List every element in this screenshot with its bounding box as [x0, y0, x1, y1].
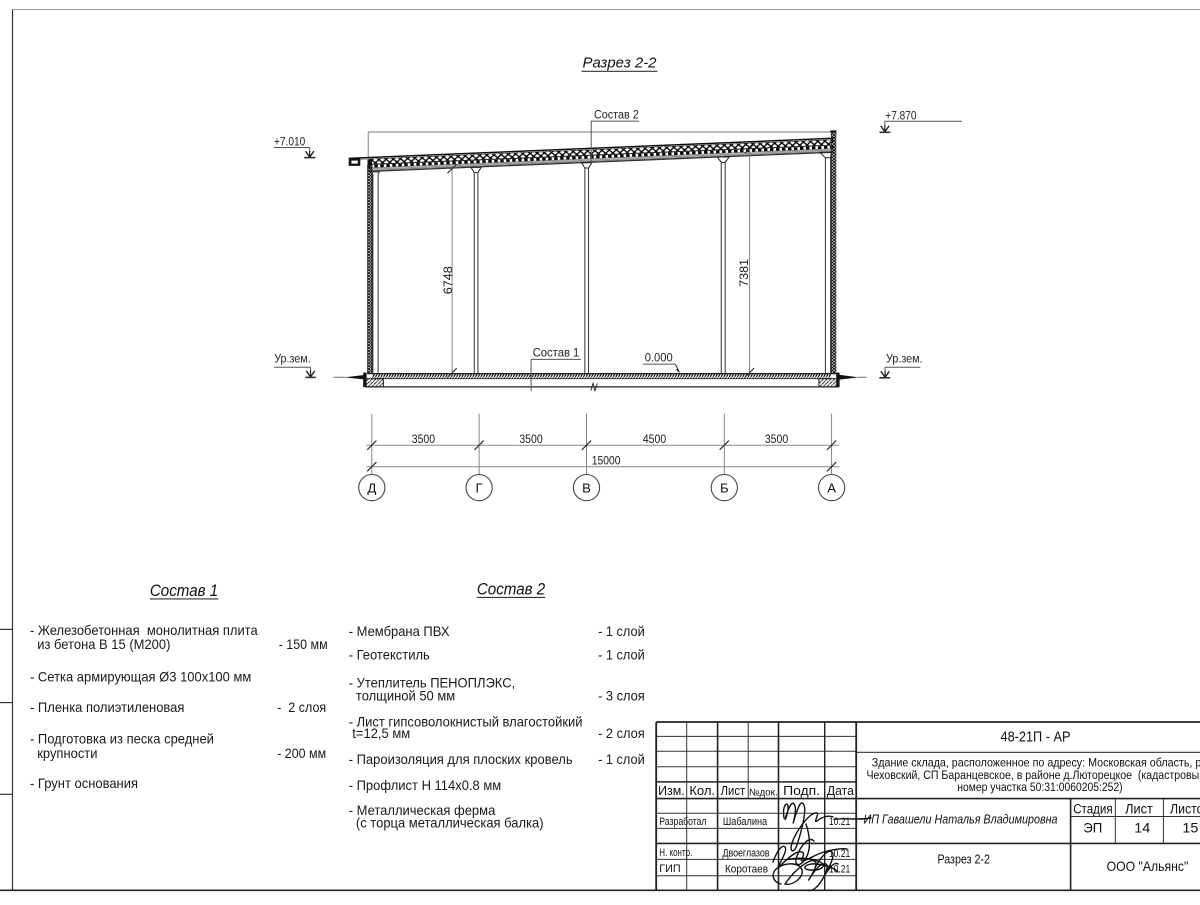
svg-text:Двоеглазов: Двоеглазов	[723, 848, 770, 860]
svg-text:15: 15	[1182, 820, 1198, 836]
svg-text:0.000: 0.000	[645, 351, 673, 365]
svg-text:- 3 слоя: - 3 слоя	[598, 688, 645, 703]
svg-text:Лист: Лист	[721, 783, 746, 798]
svg-text:Д: Д	[367, 480, 376, 495]
svg-text:крупности: крупности	[30, 746, 98, 761]
svg-text:- 200 мм: - 200 мм	[277, 746, 326, 761]
svg-text:t=12,5 мм: t=12,5 мм	[349, 726, 411, 741]
svg-text:из бетона В 15 (М200): из бетона В 15 (М200)	[30, 637, 170, 652]
svg-text:+7.870: +7.870	[885, 108, 917, 122]
svg-text:- 150 мм: - 150 мм	[279, 637, 328, 652]
svg-text:- Пленка полиэтиленовая: - Пленка полиэтиленовая	[30, 700, 184, 715]
svg-text:Состав 1: Состав 1	[533, 346, 580, 360]
svg-text:- Пароизоляция для плоских кро: - Пароизоляция для плоских кровель	[349, 752, 573, 767]
svg-text:4500: 4500	[643, 432, 666, 446]
svg-text:- Грунт основания: - Грунт основания	[30, 776, 138, 791]
svg-text:ООО "Альянс": ООО "Альянс"	[1107, 859, 1189, 874]
svg-text:ИП Гавашели Наталья Владимиров: ИП Гавашели Наталья Владимировна	[864, 813, 1058, 827]
svg-text:Г: Г	[476, 480, 483, 495]
svg-text:- Геотекстиль: - Геотекстиль	[349, 648, 430, 663]
svg-text:- 1 слой: - 1 слой	[598, 624, 645, 639]
svg-text:Кол.: Кол.	[689, 783, 715, 798]
svg-text:- 1 слой: - 1 слой	[598, 752, 645, 767]
svg-text:№док.: №док.	[749, 787, 778, 798]
svg-text:48-21П - АР: 48-21П - АР	[1001, 729, 1071, 745]
svg-text:номер участка 50:31:0060205:25: номер участка 50:31:0060205:252)	[957, 780, 1122, 794]
svg-text:Состав 2: Состав 2	[477, 579, 546, 598]
svg-text:6748: 6748	[441, 266, 455, 294]
svg-text:10.21: 10.21	[829, 816, 851, 828]
svg-text:ГИП: ГИП	[659, 863, 680, 875]
svg-text:Ур.зем.: Ур.зем.	[886, 351, 923, 365]
svg-text:Разрез 2-2: Разрез 2-2	[583, 56, 657, 72]
svg-text:Стадия: Стадия	[1073, 801, 1112, 816]
svg-text:3500: 3500	[519, 432, 542, 446]
svg-text:14: 14	[1134, 820, 1150, 836]
svg-text:(с торца металлическая балка): (с торца металлическая балка)	[349, 816, 544, 831]
svg-text:Б: Б	[720, 480, 729, 495]
svg-text:В: В	[582, 480, 591, 495]
svg-text:Состав 1: Состав 1	[150, 581, 218, 600]
svg-text:Подп.: Подп.	[783, 783, 820, 798]
svg-text:Листов: Листов	[1170, 801, 1200, 816]
svg-text:толщиной 50 мм: толщиной 50 мм	[349, 688, 456, 703]
svg-text:3500: 3500	[412, 432, 435, 446]
svg-text:Состав 2: Состав 2	[594, 108, 639, 122]
svg-text:- 2 слоя: - 2 слоя	[598, 726, 645, 741]
svg-text:+7.010: +7.010	[274, 134, 306, 148]
svg-text:А: А	[827, 480, 836, 495]
svg-text:- Мембрана ПВХ: - Мембрана ПВХ	[349, 624, 450, 639]
svg-text:Изм.: Изм.	[658, 783, 685, 798]
svg-text:Лист: Лист	[1125, 801, 1153, 816]
svg-text:Шабалина: Шабалина	[723, 816, 768, 828]
svg-text:3500: 3500	[765, 432, 788, 446]
svg-text:Разрез 2-2: Разрез 2-2	[937, 853, 990, 867]
svg-text:Н. контр.: Н. контр.	[659, 847, 692, 859]
svg-text:15000: 15000	[592, 454, 621, 468]
svg-text:- Подготовка из песка средней: - Подготовка из песка средней	[30, 731, 214, 746]
svg-text:Ур.зем.: Ур.зем.	[274, 351, 311, 365]
svg-text:- Профлист Н 114х0.8 мм: - Профлист Н 114х0.8 мм	[349, 778, 502, 793]
svg-text:- 1 слой: - 1 слой	[598, 648, 645, 663]
svg-text:- Сетка армирующая Ø3 100х100: - Сетка армирующая Ø3 100х100 мм	[30, 669, 251, 684]
svg-text:Коротаев: Коротаев	[725, 863, 768, 875]
svg-text:- Железобетонная монолитная п: - Железобетонная монолитная плита	[30, 623, 258, 638]
svg-text:Разработал: Разработал	[659, 816, 706, 828]
svg-text:Дата: Дата	[827, 783, 855, 798]
svg-text:ЭП: ЭП	[1083, 820, 1102, 836]
svg-text:- 2 слоя: - 2 слоя	[277, 700, 326, 715]
svg-text:7381: 7381	[737, 259, 751, 287]
